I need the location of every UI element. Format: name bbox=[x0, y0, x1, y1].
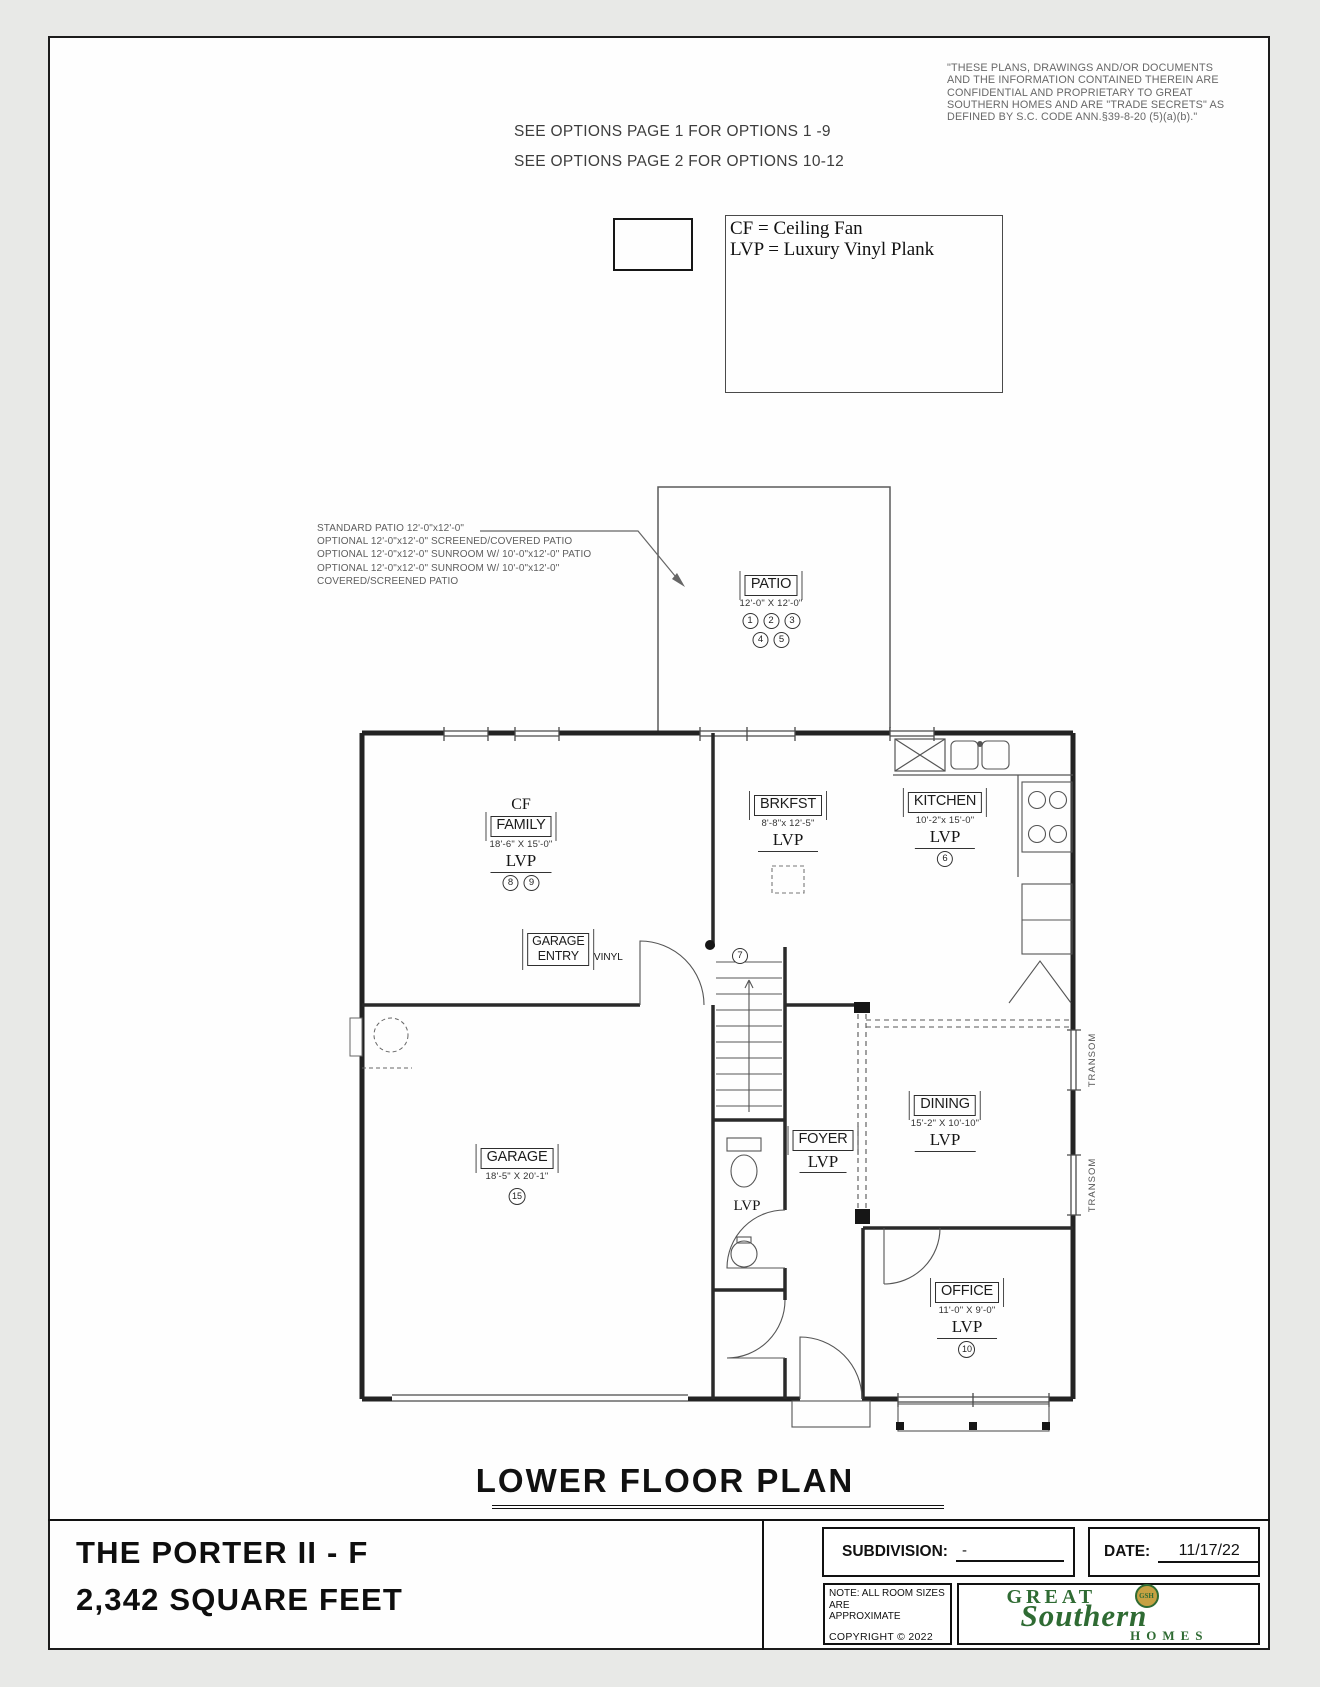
breakfast-floor: LVP bbox=[758, 831, 819, 852]
option-circle: 6 bbox=[937, 851, 953, 867]
drawing-paper bbox=[48, 36, 1270, 1650]
dining-dims: 15'-2" X 10'-10" bbox=[911, 1119, 980, 1129]
family-dims: 18'-6" X 15'-0" bbox=[489, 840, 552, 850]
room-size-note: NOTE: ALL ROOM SIZES ARE APPROXIMATE bbox=[829, 1588, 948, 1623]
date-cell: DATE: 11/17/22 bbox=[1088, 1527, 1260, 1577]
garage-entry-name: GARAGE ENTRY bbox=[527, 933, 589, 966]
patio-label: PATIO 12'-0" X 12'-0" 1 2 3 4 5 bbox=[739, 575, 802, 648]
option-circle: 7 bbox=[732, 948, 748, 964]
powder-floor: LVP bbox=[734, 1198, 761, 1215]
breakfast-name: BRKFST bbox=[754, 795, 822, 816]
logo-cell: GREAT GSH Southern HOMES bbox=[957, 1583, 1260, 1645]
option-circle: 1 bbox=[742, 613, 758, 629]
option-circle: 4 bbox=[752, 632, 768, 648]
dining-floor: LVP bbox=[915, 1131, 976, 1152]
patio-dims: 12'-0" X 12'-0" bbox=[739, 599, 802, 609]
family-room-label: CF FAMILY 18'-6" X 15'-0" LVP 8 9 bbox=[489, 797, 552, 891]
patio-name: PATIO bbox=[745, 575, 797, 596]
sheet-title: LOWER FLOOR PLAN bbox=[476, 1462, 854, 1500]
option-circle: 2 bbox=[763, 613, 779, 629]
kitchen-dims: 10'-2"x 15'-0" bbox=[908, 816, 982, 826]
kitchen-floor: LVP bbox=[915, 828, 976, 849]
floor-plan-sheet: "THESE PLANS, DRAWINGS AND/OR DOCUMENTS … bbox=[0, 0, 1320, 1687]
family-floor: LVP bbox=[491, 852, 552, 873]
model-name: THE PORTER II - F bbox=[76, 1530, 403, 1577]
kitchen-label: KITCHEN 10'-2"x 15'-0" LVP 6 bbox=[908, 792, 982, 867]
copyright-text: COPYRIGHT © 2022 bbox=[829, 1632, 948, 1644]
kitchen-name: KITCHEN bbox=[908, 792, 982, 813]
logo-word-homes: HOMES bbox=[1130, 1628, 1208, 1644]
breakfast-dims: 8'-8"x 12'-5" bbox=[754, 819, 822, 829]
garage-entry-label: GARAGE ENTRY VINYL bbox=[527, 933, 623, 966]
office-floor: LVP bbox=[937, 1318, 998, 1339]
garage-label: GARAGE 18'-5" X 20'-1" 15 bbox=[481, 1148, 554, 1205]
dining-label: DINING 15'-2" X 10'-10" LVP bbox=[911, 1095, 980, 1152]
garage-name: GARAGE bbox=[481, 1148, 554, 1169]
breakfast-label: BRKFST 8'-8"x 12'-5" LVP bbox=[754, 795, 822, 852]
garage-dims: 18'-5" X 20'-1" bbox=[481, 1172, 554, 1182]
office-label: OFFICE 11'-0" X 9'-0" LVP 10 bbox=[935, 1282, 999, 1358]
foyer-name: FOYER bbox=[793, 1130, 854, 1151]
legend-box: CF = Ceiling Fan LVP = Luxury Vinyl Plan… bbox=[725, 215, 1003, 393]
foyer-label: FOYER LVP bbox=[793, 1130, 854, 1173]
subdivision-cell: SUBDIVISION: - bbox=[822, 1527, 1075, 1577]
title-block-top-line bbox=[48, 1519, 1270, 1521]
option-circle: 5 bbox=[773, 632, 789, 648]
foyer-floor: LVP bbox=[800, 1153, 847, 1174]
subdivision-value: - bbox=[956, 1542, 1064, 1562]
legend-symbol-rect bbox=[613, 218, 693, 271]
date-value: 11/17/22 bbox=[1158, 1542, 1260, 1563]
confidentiality-disclaimer: "THESE PLANS, DRAWINGS AND/OR DOCUMENTS … bbox=[947, 62, 1229, 123]
title-block-divider bbox=[762, 1519, 764, 1650]
great-southern-homes-logo: GREAT GSH Southern HOMES bbox=[1003, 1586, 1215, 1642]
subdivision-label: SUBDIVISION: bbox=[842, 1543, 948, 1561]
model-name-block: THE PORTER II - F 2,342 SQUARE FEET bbox=[76, 1530, 403, 1623]
options-reference-note: SEE OPTIONS PAGE 1 FOR OPTIONS 1 -9 SEE … bbox=[514, 117, 844, 177]
family-ceiling-fan: CF bbox=[489, 797, 552, 813]
note-cell: NOTE: ALL ROOM SIZES ARE APPROXIMATE COP… bbox=[823, 1583, 952, 1645]
square-feet: 2,342 SQUARE FEET bbox=[76, 1577, 403, 1624]
date-label: DATE: bbox=[1104, 1543, 1150, 1561]
sheet-title-underline bbox=[492, 1505, 944, 1509]
option-circle: 3 bbox=[784, 613, 800, 629]
office-dims: 11'-0" X 9'-0" bbox=[935, 1306, 999, 1316]
dining-name: DINING bbox=[914, 1095, 976, 1116]
office-name: OFFICE bbox=[935, 1282, 999, 1303]
garage-entry-floor: VINYL bbox=[594, 952, 623, 963]
option-circle: 15 bbox=[509, 1188, 526, 1205]
patio-options-note: STANDARD PATIO 12'-0"x12'-0" OPTIONAL 12… bbox=[317, 522, 617, 588]
option-circle: 8 bbox=[502, 875, 518, 891]
option-circle: 10 bbox=[959, 1341, 976, 1358]
option-circle: 9 bbox=[523, 875, 539, 891]
family-name: FAMILY bbox=[490, 816, 551, 837]
logo-word-southern: Southern bbox=[1021, 1598, 1148, 1634]
